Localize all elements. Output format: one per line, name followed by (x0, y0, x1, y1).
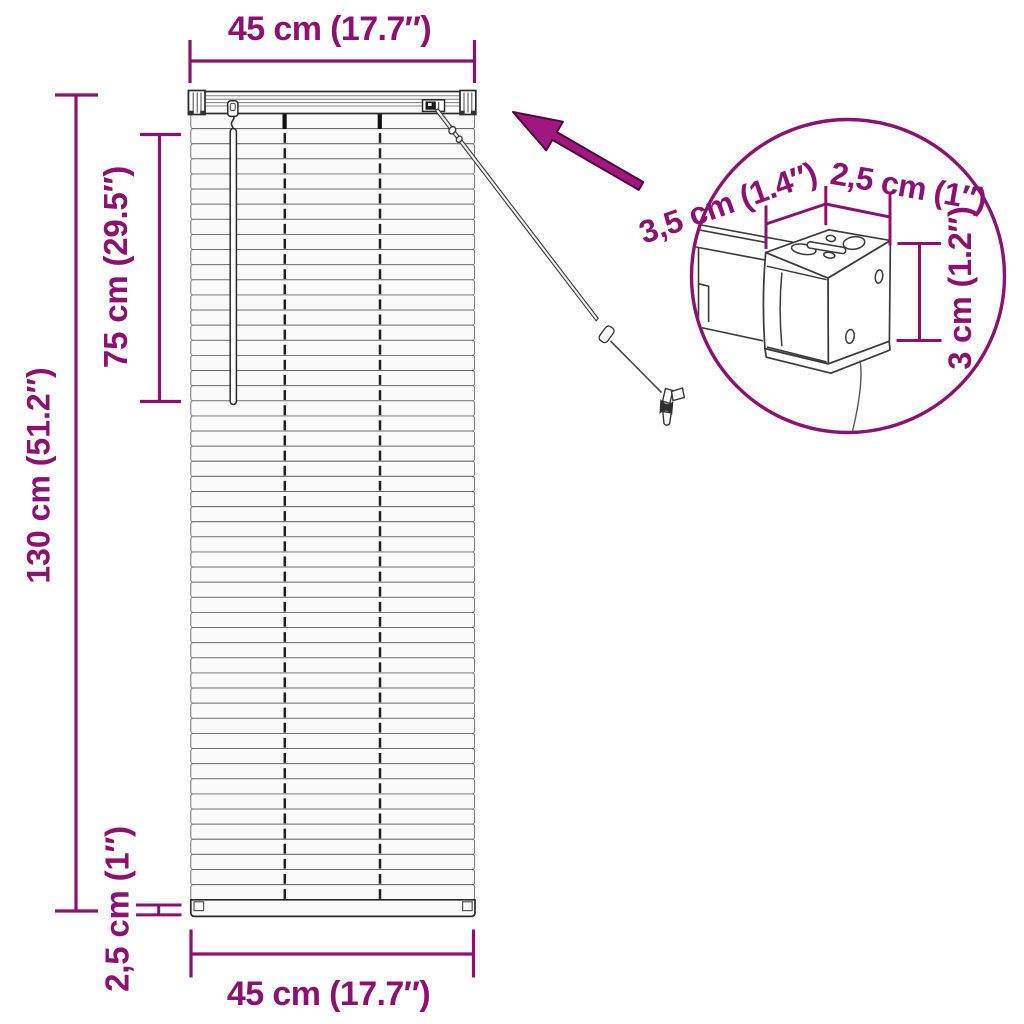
svg-text:45 cm (17.7″): 45 cm (17.7″) (228, 10, 431, 48)
svg-text:75 cm (29.5″): 75 cm (29.5″) (97, 166, 134, 368)
svg-text:130 cm (51.2″): 130 cm (51.2″) (21, 367, 57, 583)
svg-text:3 cm (1.2″): 3 cm (1.2″) (942, 206, 978, 369)
svg-text:45 cm (17.7″): 45 cm (17.7″) (227, 975, 430, 1013)
svg-text:2,5 cm (1″): 2,5 cm (1″) (99, 826, 136, 992)
